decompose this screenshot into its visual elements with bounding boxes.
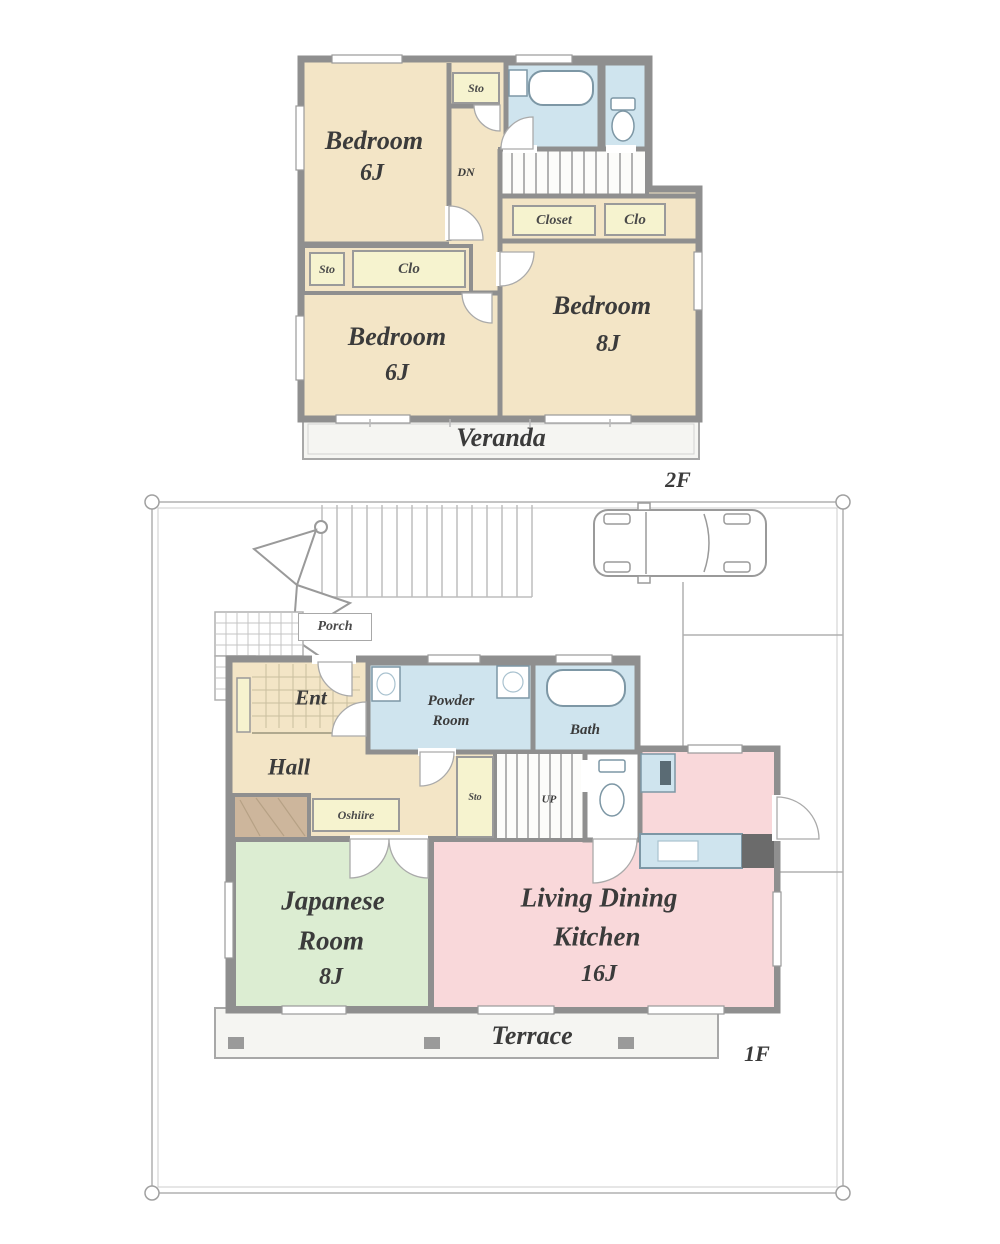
powder-room-label-line2: Room: [433, 711, 470, 731]
storage-tag-2f-west: Sto: [309, 252, 345, 286]
storage-tag-1f: Sto: [456, 756, 494, 838]
washing-machine: [497, 666, 529, 698]
bedroom-e-label: Bedroom: [553, 293, 651, 319]
stairs-2f: [500, 149, 647, 196]
floor-plan-drawing: [0, 0, 1000, 1244]
washbasin-2f: [509, 70, 527, 96]
bedroom-nw-size: 6J: [360, 161, 384, 185]
car: [594, 503, 766, 583]
tokonoma: [233, 795, 309, 839]
oshiire-tag: Oshiire: [312, 798, 400, 832]
terrace-label: Terrace: [491, 1023, 572, 1049]
clo-tag-2f-west: Clo: [352, 250, 466, 288]
refrigerator: [641, 754, 675, 792]
bedroom-e-size: 8J: [596, 332, 620, 356]
japanese-room-label-line1: Japanese: [281, 888, 385, 915]
japanese-room-label-line2: Room: [298, 928, 364, 955]
ldk-label-line1: Living Dining: [521, 885, 678, 912]
porch-label: Porch: [298, 613, 372, 641]
floor-1f-label: 1F: [744, 1043, 770, 1065]
bedroom-sw-label: Bedroom: [348, 324, 446, 350]
bath-label: Bath: [570, 720, 600, 740]
storage-tag-2f-top: Sto: [452, 72, 500, 104]
bedroom-nw-label: Bedroom: [325, 128, 423, 154]
bathtub-1f: [547, 670, 625, 706]
bathtub-2f: [529, 71, 593, 105]
stairs-up-label: UP: [542, 795, 557, 806]
shoe-cabinet: [237, 678, 250, 732]
closet-tag-2f-east: Closet: [512, 205, 596, 236]
bedroom-sw-size: 6J: [385, 361, 409, 385]
entrance-label: Ent: [295, 688, 327, 709]
kitchen-appliance: [742, 834, 774, 868]
ldk-label-line2: Kitchen: [553, 924, 640, 951]
floor-1f-plan: [215, 655, 819, 1058]
ldk-size: 16J: [581, 962, 617, 986]
clo-tag-2f-east: Clo: [604, 203, 666, 236]
japanese-room-size: 8J: [319, 965, 343, 989]
stairs-down-label: DN: [457, 166, 474, 178]
washbasin-1f: [372, 667, 400, 701]
floor-plan-canvas: Bedroom 6J Bedroom 6J Bedroom 8J DN Vera…: [0, 0, 1000, 1244]
toilet-fixture-2f: [611, 98, 635, 141]
hall-label: Hall: [268, 756, 310, 779]
powder-room-label-line1: Powder: [428, 691, 475, 711]
floor-2f-label: 2F: [665, 469, 691, 491]
kitchen-counter: [640, 834, 742, 868]
driveway-hatch: [322, 505, 532, 597]
veranda-label: Veranda: [456, 425, 546, 451]
terrace: [215, 1008, 718, 1058]
